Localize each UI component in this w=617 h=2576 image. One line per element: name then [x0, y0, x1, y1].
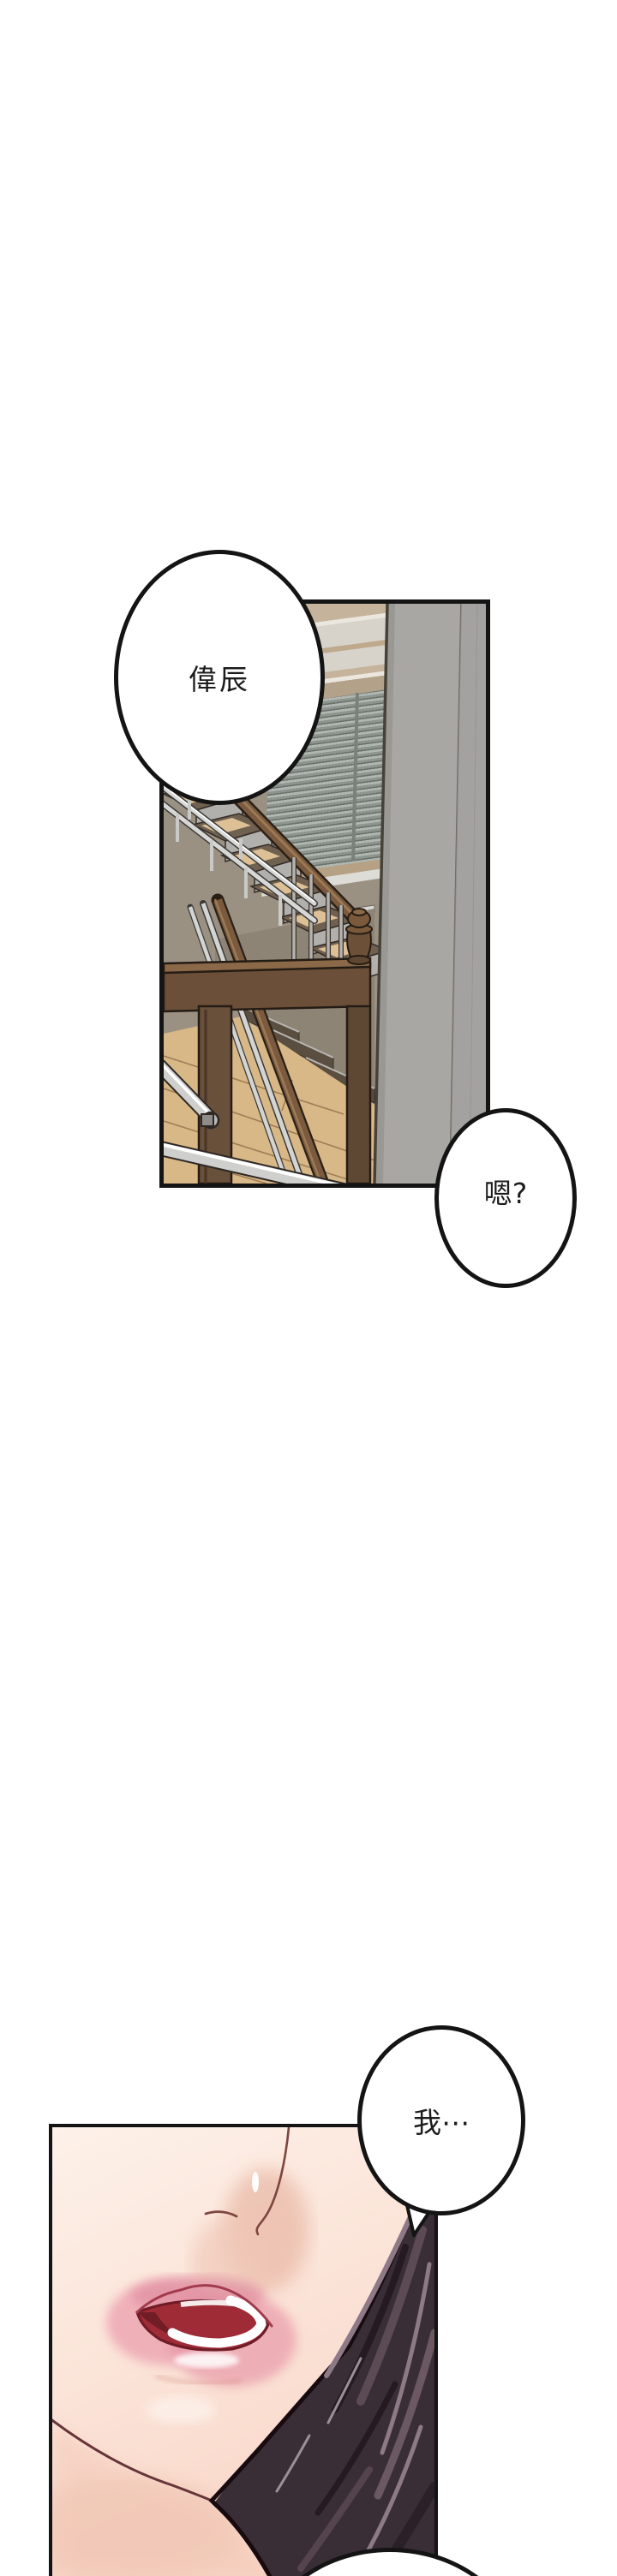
- speech-bubble-name: 偉辰: [114, 550, 325, 805]
- bubble-hesitation-text: 我⋯: [413, 2100, 470, 2141]
- chin-highlight: [147, 2396, 215, 2424]
- bubble-response-text: 嗯?: [484, 1171, 528, 1212]
- speech-bubble-response: 嗯?: [434, 1108, 577, 1288]
- newel-finial: [346, 909, 372, 964]
- face-scene: [52, 2127, 434, 2576]
- bubble-name-text: 偉辰: [189, 657, 250, 698]
- panel-face: [49, 2124, 438, 2576]
- speech-bubble-hesitation: 我⋯: [357, 2025, 525, 2215]
- mouth: [106, 2276, 297, 2387]
- skin-highlight: [252, 2172, 259, 2192]
- concrete-pillar: [374, 604, 486, 1184]
- comic-page: 偉辰 嗯? 我⋯: [0, 0, 617, 2576]
